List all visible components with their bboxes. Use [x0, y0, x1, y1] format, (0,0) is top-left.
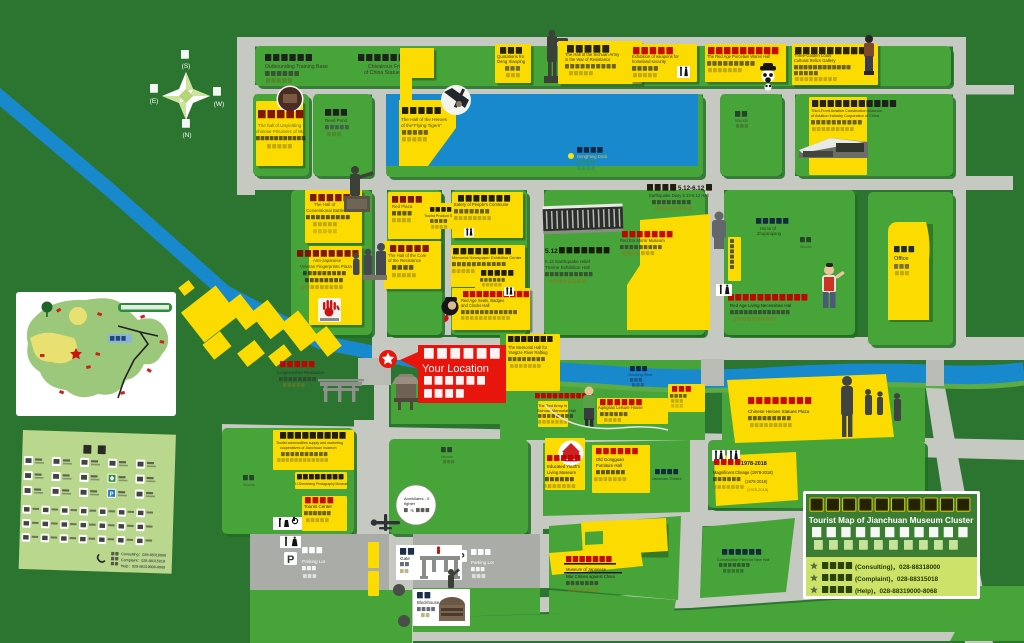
svg-text:The Hall of the Heroes: The Hall of the Heroes: [401, 117, 448, 122]
svg-text:5.12: 5.12: [545, 248, 558, 255]
svg-text:Parking Lot: Parking Lot: [302, 559, 326, 564]
svg-text:The Hall of: The Hall of: [314, 202, 336, 207]
svg-text:(E): (E): [150, 98, 159, 105]
svg-text:Jianchuan Theatre: Jianchuan Theatre: [652, 477, 682, 481]
svg-text:The Red Age Porcelain Wares Ha: The Red Age Porcelain Wares Hall: [707, 54, 770, 59]
svg-text:Gate: Gate: [400, 556, 410, 561]
svg-text:(Consulting)，028-88318000: (Consulting)，028-88318000: [855, 564, 941, 571]
svg-text:Chinese Heroes Statues Plaza: Chinese Heroes Statues Plaza: [748, 409, 810, 414]
svg-text:homeland security: homeland security: [632, 59, 667, 64]
svg-text:Zhujianqiang: Zhujianqiang: [757, 231, 782, 236]
svg-text:Cultural Relics Gallery: Cultural Relics Gallery: [794, 58, 836, 63]
svg-text:and Clocks Hall: and Clocks Hall: [461, 303, 490, 308]
svg-text:Yangtze River Rafting: Yangtze River Rafting: [508, 350, 548, 355]
svg-text:Furniture Hall: Furniture Hall: [596, 463, 622, 468]
svg-text:Reed Pond: Reed Pond: [325, 118, 348, 123]
svg-text:fighter: fighter: [404, 501, 416, 506]
svg-text:Construction Filed for New Hal: Construction Filed for New Hall: [717, 558, 769, 562]
svg-text:Woods: Woods: [735, 118, 748, 123]
svg-text:Tourist Center: Tourist Center: [304, 504, 333, 509]
svg-text:5.12 Earthquake relief: 5.12 Earthquake relief: [545, 259, 591, 264]
svg-text:Xiaolong River: Xiaolong River: [628, 373, 653, 377]
svg-text:Living Museum: Living Museum: [547, 470, 576, 475]
svg-text:(S): (S): [182, 63, 191, 70]
svg-text:Blockhouse: Blockhouse: [417, 600, 440, 605]
svg-text:Museum of Japanese: Museum of Japanese: [566, 567, 607, 572]
svg-text:(Complaint)，028-88315018: (Complaint)，028-88315018: [855, 576, 939, 583]
svg-text:Deng Xiaoping: Deng Xiaoping: [497, 59, 526, 64]
svg-text:Longmenzhen Restaurant: Longmenzhen Restaurant: [277, 370, 325, 375]
svg-text:cooperatives of Jianchuan muse: cooperatives of Jianchuan museum: [280, 446, 337, 450]
svg-text:Veteran Fingerprints Plaza: Veteran Fingerprints Plaza: [300, 264, 352, 269]
svg-text:Sichuan Memorial Hall: Sichuan Memorial Hall: [537, 408, 576, 413]
svg-text:Red Age Living Necessities Ha: Red Age Living Necessities Hal: [730, 303, 791, 308]
svg-text:Tourist Map of Jianchuan Museu: Tourist Map of Jianchuan Museum Cluster: [809, 516, 974, 525]
svg-text:Outbounding Training Base: Outbounding Training Base: [265, 64, 328, 70]
svg-text:of Aviation Industry Corporati: of Aviation Industry Corporation of Chin…: [811, 114, 880, 118]
svg-text:in the War of Resistance: in the War of Resistance: [565, 57, 611, 62]
svg-text:(W): (W): [214, 101, 224, 108]
svg-text:Earthquake Diary 5.12-6.12 Hal: Earthquake Diary 5.12-6.12 Hall: [649, 193, 709, 198]
svg-text:Red Era Mirror Museum: Red Era Mirror Museum: [620, 238, 665, 243]
svg-text:Anti-Japanese: Anti-Japanese: [313, 258, 342, 263]
svg-text:Aqingsao Leisure House: Aqingsao Leisure House: [598, 405, 643, 410]
svg-text:5.12-6.12: 5.12-6.12: [678, 185, 705, 192]
svg-text:Memorial Newspaper Exhibition: Memorial Newspaper Exhibition Center: [452, 255, 522, 260]
svg-text:Third-Front Aviation Construct: Third-Front Aviation Construction Museum: [811, 109, 882, 113]
svg-text:1978-2018: 1978-2018: [741, 461, 767, 467]
svg-text:Magnificent Change (1978-2018): Magnificent Change (1978-2018): [713, 470, 773, 475]
svg-text:Red Plaza: Red Plaza: [392, 204, 413, 209]
svg-text:Your Location: Your Location: [422, 363, 489, 375]
svg-text:Woods: Woods: [800, 245, 812, 249]
svg-text:P: P: [287, 554, 294, 566]
svg-text:of the"Flying Tigers": of the"Flying Tigers": [401, 123, 442, 128]
svg-text:P: P: [109, 492, 113, 498]
svg-text:Office: Office: [894, 256, 909, 262]
svg-text:Li Zhensheng Photography Museu: Li Zhensheng Photography Museum: [295, 482, 348, 486]
svg-text:The hall of Unyielding: The hall of Unyielding: [258, 123, 302, 128]
svg-text:(Help)，028-88319000-8068: (Help)，028-88319000-8068: [855, 588, 938, 595]
svg-text:Woods: Woods: [243, 483, 255, 487]
svg-text:Woods: Woods: [441, 455, 453, 459]
svg-text:(1978-2018): (1978-2018): [745, 479, 768, 484]
svg-text:(1978-2018): (1978-2018): [747, 487, 769, 492]
svg-text:Theme Exhibition Hall: Theme Exhibition Hall: [545, 265, 590, 270]
svg-text:of the Resistance: of the Resistance: [388, 258, 422, 263]
svg-text:(N): (N): [182, 132, 191, 139]
svg-text:chinese Prisoners of War: chinese Prisoners of War: [256, 129, 307, 134]
svg-text:Old Gongguan: Old Gongguan: [596, 457, 625, 462]
svg-text:Educated Youth's: Educated Youth's: [547, 464, 580, 469]
svg-text:Parking Lot: Parking Lot: [471, 560, 495, 565]
svg-text:Tourist commodities supply and: Tourist commodities supply and marketing: [276, 441, 343, 445]
svg-text:DongFang Dock: DongFang Dock: [577, 154, 608, 159]
svg-text:Eatery of People's Commune: Eatery of People's Commune: [454, 202, 509, 207]
svg-text:War Crimes against China: War Crimes against China: [566, 574, 615, 579]
